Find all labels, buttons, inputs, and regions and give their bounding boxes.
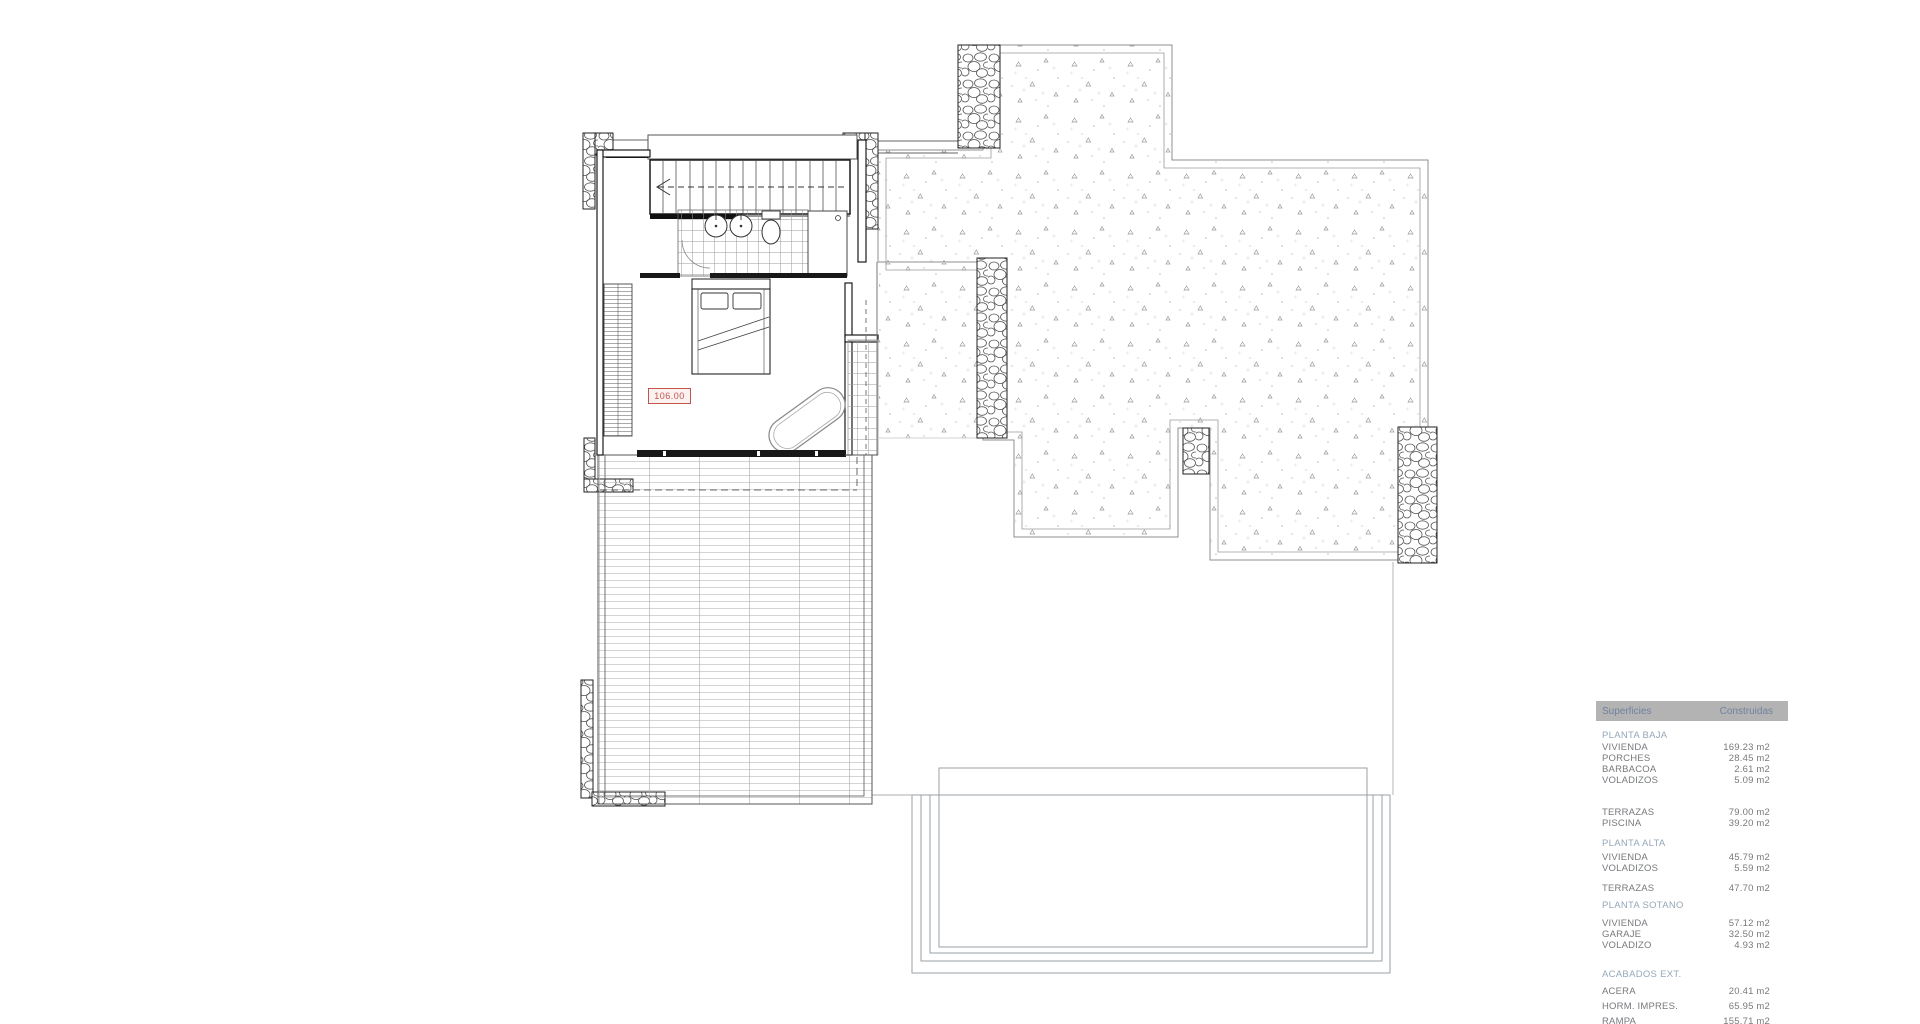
row-value: 5.09 m2 [1734, 775, 1770, 786]
room-area-label: 106.00 [648, 388, 691, 404]
table-row: GARAJE32.50 m2 [1596, 929, 1788, 940]
table-row: TERRAZAS47.70 m2 [1596, 883, 1788, 894]
row-value: 169.23 m2 [1723, 742, 1770, 753]
row-value: 5.59 m2 [1734, 863, 1770, 874]
table-row: PISCINA39.20 m2 [1596, 818, 1788, 829]
side-patio [879, 263, 982, 438]
surfaces-table: Superficies Construidas PLANTA BAJA VIVI… [1596, 701, 1788, 1024]
section-title: PLANTA BAJA [1596, 730, 1788, 741]
row-label: TERRAZAS [1602, 883, 1654, 894]
row-value: 28.45 m2 [1729, 753, 1770, 764]
table-row: TERRAZAS79.00 m2 [1596, 807, 1788, 818]
section-title: PLANTA SOTANO [1596, 900, 1788, 911]
row-label: VIVIENDA [1602, 918, 1648, 929]
pillow-right [733, 293, 761, 309]
glazed-south-wall [637, 450, 846, 457]
row-label: GARAJE [1602, 929, 1641, 940]
row-value: 4.93 m2 [1734, 940, 1770, 951]
row-value: 45.79 m2 [1729, 852, 1770, 863]
stone-pillar-terrace-left [581, 680, 593, 798]
row-label: PORCHES [1602, 753, 1650, 764]
row-value: 47.70 m2 [1729, 883, 1770, 894]
table-row: VOLADIZO4.93 m2 [1596, 940, 1788, 951]
table-row: HORM. IMPRES.65.95 m2 [1596, 999, 1788, 1014]
stone-pillar-terrain-left [977, 258, 1007, 438]
stone-pillar-building-right [865, 133, 878, 229]
table-row: VIVIENDA45.79 m2 [1596, 852, 1788, 863]
row-label: VOLADIZOS [1602, 775, 1658, 786]
stone-pillar-terrain-notch [1183, 428, 1209, 474]
bedroom [604, 279, 852, 459]
header-superficies: Superficies [1602, 706, 1651, 717]
table-row: PORCHES28.45 m2 [1596, 753, 1788, 764]
table-row: BARBACOA2.61 m2 [1596, 764, 1788, 775]
row-label: TERRAZAS [1602, 807, 1654, 818]
table-row: ACERA20.41 m2 [1596, 984, 1788, 999]
row-value: 32.50 m2 [1729, 929, 1770, 940]
row-label: VOLADIZOS [1602, 863, 1658, 874]
surfaces-table-header: Superficies Construidas [1596, 701, 1788, 721]
row-value: 57.12 m2 [1729, 918, 1770, 929]
pool [872, 562, 1393, 973]
row-label: RAMPA [1602, 1014, 1636, 1024]
section-planta-baja: PLANTA BAJA VIVIENDA169.23 m2 PORCHES28.… [1596, 730, 1788, 786]
row-label: VIVIENDA [1602, 742, 1648, 753]
pillow-left [701, 293, 728, 309]
stone-pillar-terrain-top [958, 45, 1000, 148]
section-planta-alta: PLANTA ALTA VIVIENDA45.79 m2 VOLADIZOS5.… [1596, 838, 1788, 874]
row-value: 79.00 m2 [1729, 807, 1770, 818]
row-label: BARBACOA [1602, 764, 1656, 775]
building [597, 135, 878, 459]
row-value: 39.20 m2 [1729, 818, 1770, 829]
wood-deck-terrace [598, 455, 872, 804]
table-row: VOLADIZOS5.09 m2 [1596, 775, 1788, 786]
row-label: PISCINA [1602, 818, 1641, 829]
table-row: VOLADIZOS5.59 m2 [1596, 863, 1788, 874]
section-title: ACABADOS EXT. [1596, 969, 1788, 980]
toilet [762, 211, 780, 244]
section-planta-sotano: PLANTA SOTANO VIVIENDA57.12 m2 GARAJE32.… [1596, 900, 1788, 951]
stone-pillar-building-left [583, 133, 595, 209]
row-value: 20.41 m2 [1729, 984, 1770, 999]
row-label: VOLADIZO [1602, 940, 1652, 951]
shower [808, 211, 847, 276]
row-value: 155.71 m2 [1723, 1014, 1770, 1024]
row-value: 2.61 m2 [1734, 764, 1770, 775]
row-label: HORM. IMPRES. [1602, 999, 1678, 1014]
section-terrazas-alta: TERRAZAS47.70 m2 [1596, 883, 1788, 894]
stone-pillar-terrain-right [1398, 427, 1437, 563]
row-value: 65.95 m2 [1729, 999, 1770, 1014]
bathtub [762, 381, 852, 459]
row-label: ACERA [1602, 984, 1636, 999]
floor-plan-page: 106.00 Superficies Construidas PLANTA BA… [0, 0, 1920, 1024]
section-title: PLANTA ALTA [1596, 838, 1788, 849]
section-acabados-ext: ACABADOS EXT. ACERA20.41 m2 HORM. IMPRES… [1596, 969, 1788, 1024]
table-row: RAMPA155.71 m2 [1596, 1014, 1788, 1024]
table-row: VIVIENDA169.23 m2 [1596, 742, 1788, 753]
bathroom [640, 210, 847, 278]
header-construidas: Construidas [1720, 706, 1773, 717]
bed [692, 279, 770, 374]
table-row: VIVIENDA57.12 m2 [1596, 918, 1788, 929]
row-label: VIVIENDA [1602, 852, 1648, 863]
roof-slab [648, 135, 857, 159]
section-terrazas-piscina: TERRAZAS79.00 m2 PISCINA39.20 m2 [1596, 807, 1788, 829]
